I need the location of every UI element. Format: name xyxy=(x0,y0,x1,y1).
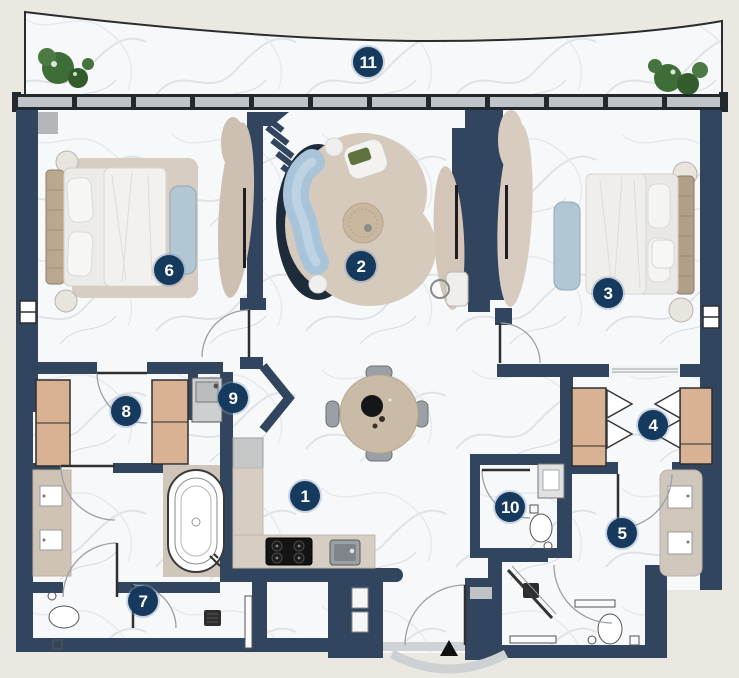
towel-bar xyxy=(575,600,615,607)
pillow xyxy=(648,184,670,228)
pillow xyxy=(67,231,93,276)
toilet xyxy=(530,514,552,542)
room-badge-3: 3 xyxy=(593,278,623,308)
room-badge-8: 8 xyxy=(111,396,141,426)
shower-glass xyxy=(245,596,252,648)
room-badge-2: 2 xyxy=(346,251,376,281)
room-badge-5: 5 xyxy=(607,518,637,548)
tv-icon xyxy=(505,185,508,259)
room-badge-7: 7 xyxy=(128,586,158,616)
room-badge-6: 6 xyxy=(154,255,184,285)
fridge xyxy=(233,438,263,470)
tv-icon xyxy=(455,185,458,259)
tv-icon xyxy=(243,188,246,268)
room-badge-10: 10 xyxy=(495,492,525,522)
toilet xyxy=(598,614,622,644)
bed-bench xyxy=(554,202,580,290)
wardrobe xyxy=(680,388,712,464)
room-badge-9: 9 xyxy=(218,383,248,413)
side-table xyxy=(325,138,343,156)
hall-cabinet xyxy=(352,588,368,608)
wardrobe xyxy=(572,388,606,466)
floor-plan-drawing xyxy=(0,0,739,678)
room-badge-11: 11 xyxy=(353,47,383,77)
hall-cabinet xyxy=(352,612,368,632)
bathtub xyxy=(168,470,224,572)
room-badge-4: 4 xyxy=(638,410,668,440)
centerpiece xyxy=(361,395,383,417)
column xyxy=(38,112,58,134)
towel-bar xyxy=(510,636,556,643)
pillow xyxy=(66,177,93,223)
room-badge-1: 1 xyxy=(290,481,320,511)
floor-plan: 1 2 3 4 5 6 7 8 9 10 11 xyxy=(0,0,739,678)
toilet xyxy=(49,606,79,628)
window-band xyxy=(12,92,728,112)
bed-headboard xyxy=(46,170,64,284)
side-table xyxy=(309,275,327,293)
